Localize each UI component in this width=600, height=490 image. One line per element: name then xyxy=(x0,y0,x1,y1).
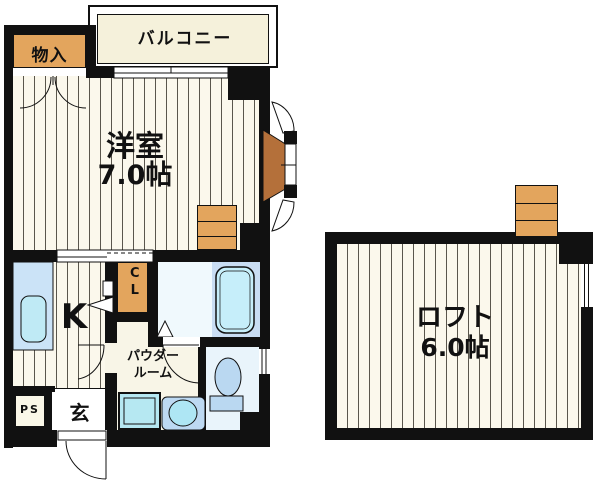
balcony-label: バルコニー xyxy=(110,24,260,49)
kitchen-label: K xyxy=(54,297,94,337)
bay-sash-top xyxy=(285,144,296,165)
loft-label: ロフト 6.0帖 xyxy=(395,304,515,363)
bay-sill xyxy=(263,130,287,202)
toilet-tank xyxy=(210,396,243,411)
bay-sash-bottom xyxy=(285,165,296,185)
pipe-space-label: PS xyxy=(16,403,44,416)
western-room-name: 洋室 xyxy=(90,131,180,162)
closet-label: CL xyxy=(126,266,142,300)
powder-room-label: パウダールーム xyxy=(122,349,184,383)
entrance-label: 玄 xyxy=(52,397,107,426)
loft-window xyxy=(581,264,593,307)
toilet-window xyxy=(259,349,270,374)
bay-corner-bottom xyxy=(284,185,297,198)
washing-machine-pan xyxy=(119,393,160,429)
toilet-bowl xyxy=(215,358,241,396)
entrance-door xyxy=(57,430,107,479)
kitchen-sink xyxy=(21,296,46,342)
bathroom-door-icon xyxy=(157,321,173,337)
balcony-sliding-window xyxy=(114,67,228,78)
storage-door-arc-left xyxy=(20,77,51,108)
loft-ladder-icon xyxy=(515,185,558,237)
kitchen-powder-door xyxy=(78,345,104,379)
storage-label: 物入 xyxy=(13,41,86,66)
washbasin xyxy=(162,397,205,430)
loft-name: ロフト xyxy=(395,304,515,334)
bay-shutter-top-icon xyxy=(272,102,294,133)
loft-size: 6.0帖 xyxy=(395,334,515,363)
bathtub xyxy=(216,267,254,333)
room-ladder-icon xyxy=(197,205,237,250)
western-room-size: 7.0帖 xyxy=(90,162,180,191)
room-kitchen-sliding-door xyxy=(57,250,153,262)
storage-door-arc-right xyxy=(55,77,86,108)
bay-shutter-bottom-icon xyxy=(272,200,294,231)
bay-corner-top xyxy=(284,131,297,144)
bay-window xyxy=(263,102,297,231)
western-room-label: 洋室 7.0帖 xyxy=(90,131,180,190)
